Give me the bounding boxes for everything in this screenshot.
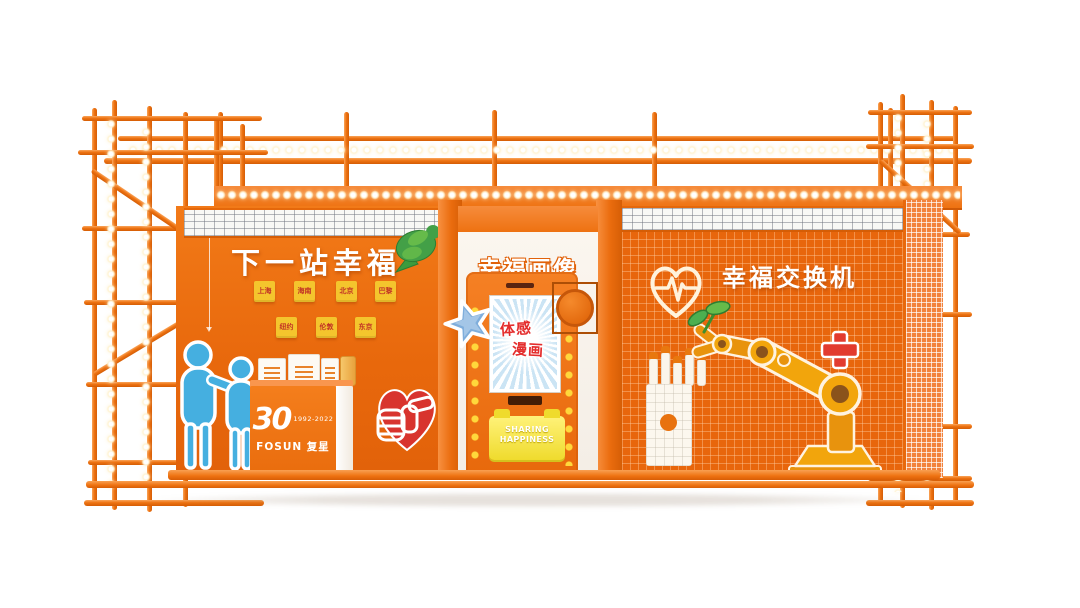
note-label: 伦敦 — [320, 324, 334, 331]
capsule-dispenser — [646, 384, 692, 466]
sticky-note: 伦敦 — [316, 317, 337, 338]
dove-icon — [388, 212, 444, 286]
note-label: 上海 — [258, 288, 272, 295]
fosun-30-logo: 30 1992-2022 FOSUN 复星 — [250, 386, 336, 472]
counter-side — [336, 386, 353, 472]
heart-fist-icon — [372, 376, 442, 456]
circle-button — [556, 289, 594, 327]
sticky-note: 北京 — [336, 281, 357, 302]
medical-cross-icon — [822, 332, 858, 368]
middle-right-column — [596, 200, 622, 472]
star-icon — [442, 296, 496, 350]
booth-render: 下一站幸福 上海 海南 北京 巴黎 纽约 伦敦 东京 — [0, 0, 1080, 608]
scaffold-pole — [866, 144, 974, 149]
scaffold-runner — [86, 481, 974, 488]
counter: 30 1992-2022 FOSUN 复星 — [250, 386, 336, 472]
kiosk-screen: 体感 漫画 — [490, 296, 560, 392]
string-lights — [141, 126, 152, 486]
test-tube — [649, 358, 658, 386]
right-section-title: 幸福交换机 — [722, 258, 857, 293]
test-tube — [673, 362, 682, 386]
note-label: 北京 — [340, 288, 354, 295]
indicator-dash — [506, 283, 534, 288]
logo-years: 1992-2022 — [293, 415, 333, 423]
dispenser-dot — [660, 414, 677, 431]
tray-line2: HAPPINESS — [489, 435, 565, 445]
box-pattern — [264, 366, 280, 379]
mesh-side-panel — [903, 200, 943, 478]
box-pattern — [295, 363, 313, 378]
sticky-note: 纽约 — [276, 317, 297, 338]
robot-arm-icon — [688, 300, 898, 478]
scaffold-pole — [868, 110, 972, 115]
sticky-note: 上海 — [254, 281, 275, 302]
box-pattern — [325, 366, 335, 379]
mesh-strip — [622, 206, 903, 232]
string-lights — [216, 190, 960, 201]
hanging-wire — [209, 238, 210, 330]
sticky-note: 海南 — [294, 281, 315, 302]
logo-number: 30 — [253, 405, 291, 435]
card-slot — [508, 396, 542, 405]
screen-text: 体感 — [499, 317, 532, 340]
logo-brand: FOSUN 复星 — [256, 439, 330, 454]
sticky-note: 巴黎 — [375, 281, 396, 302]
sticky-note: 东京 — [355, 317, 376, 338]
note-label: 纽约 — [280, 324, 294, 331]
booth-base — [168, 470, 940, 480]
test-tube — [661, 352, 670, 386]
note-label: 东京 — [359, 324, 373, 331]
scaffold-pole — [953, 106, 958, 504]
leaf-icon — [686, 300, 731, 332]
left-section-title: 下一站幸福 — [231, 240, 401, 282]
scaffold-pole — [104, 158, 972, 164]
screen-text: 漫画 — [511, 338, 544, 361]
scaffold-pole — [92, 108, 97, 504]
middle-header — [458, 206, 598, 234]
led-dots — [565, 334, 573, 466]
note-label: 巴黎 — [379, 288, 393, 295]
tray-line1: SHARING — [489, 425, 565, 435]
ground-shadow — [150, 492, 930, 508]
note-label: 海南 — [298, 288, 312, 295]
sharing-tray: SHARING HAPPINESS — [489, 416, 565, 460]
circle-button-panel — [552, 282, 598, 334]
string-lights — [106, 118, 117, 490]
tray-label: SHARING HAPPINESS — [489, 425, 565, 446]
